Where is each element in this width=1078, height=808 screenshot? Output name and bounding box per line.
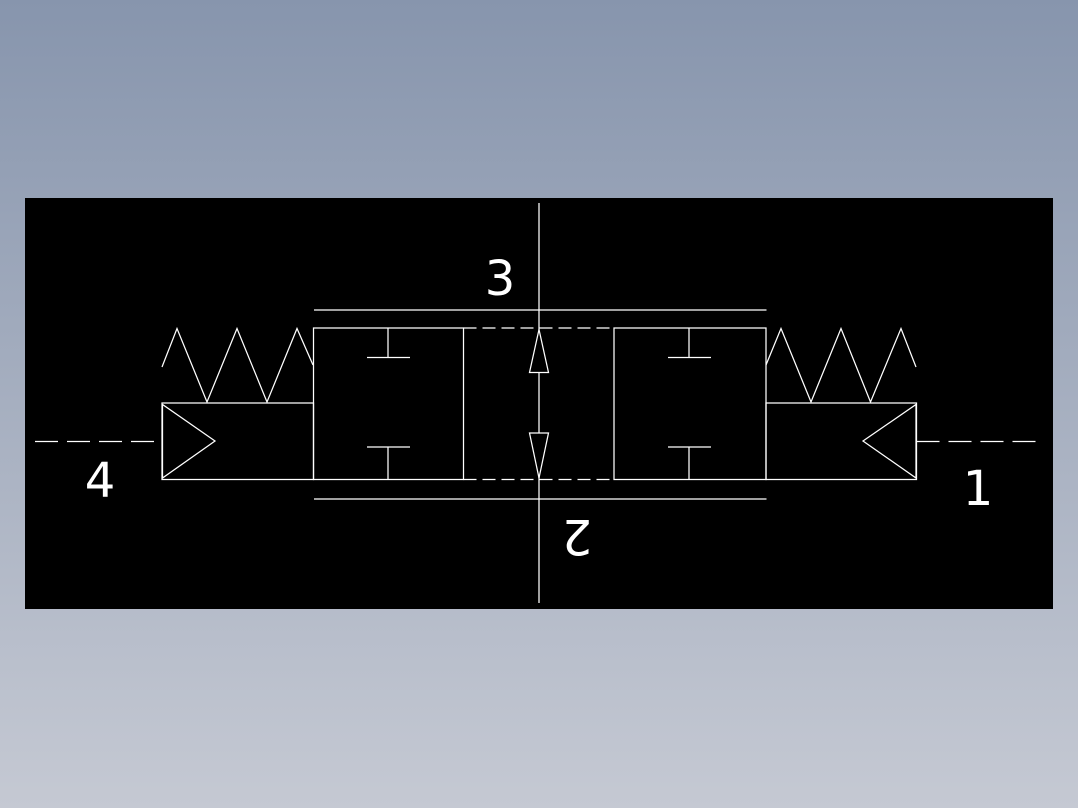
- cad-viewer-background: 3 2 4 1: [0, 0, 1078, 808]
- port-label-left: 4: [85, 453, 116, 509]
- port-label-right: 1: [963, 461, 994, 517]
- port-label-top: 3: [485, 251, 516, 307]
- cad-drawing-viewport: 3 2 4 1: [0, 0, 1078, 808]
- port-label-bottom: 2: [562, 508, 593, 564]
